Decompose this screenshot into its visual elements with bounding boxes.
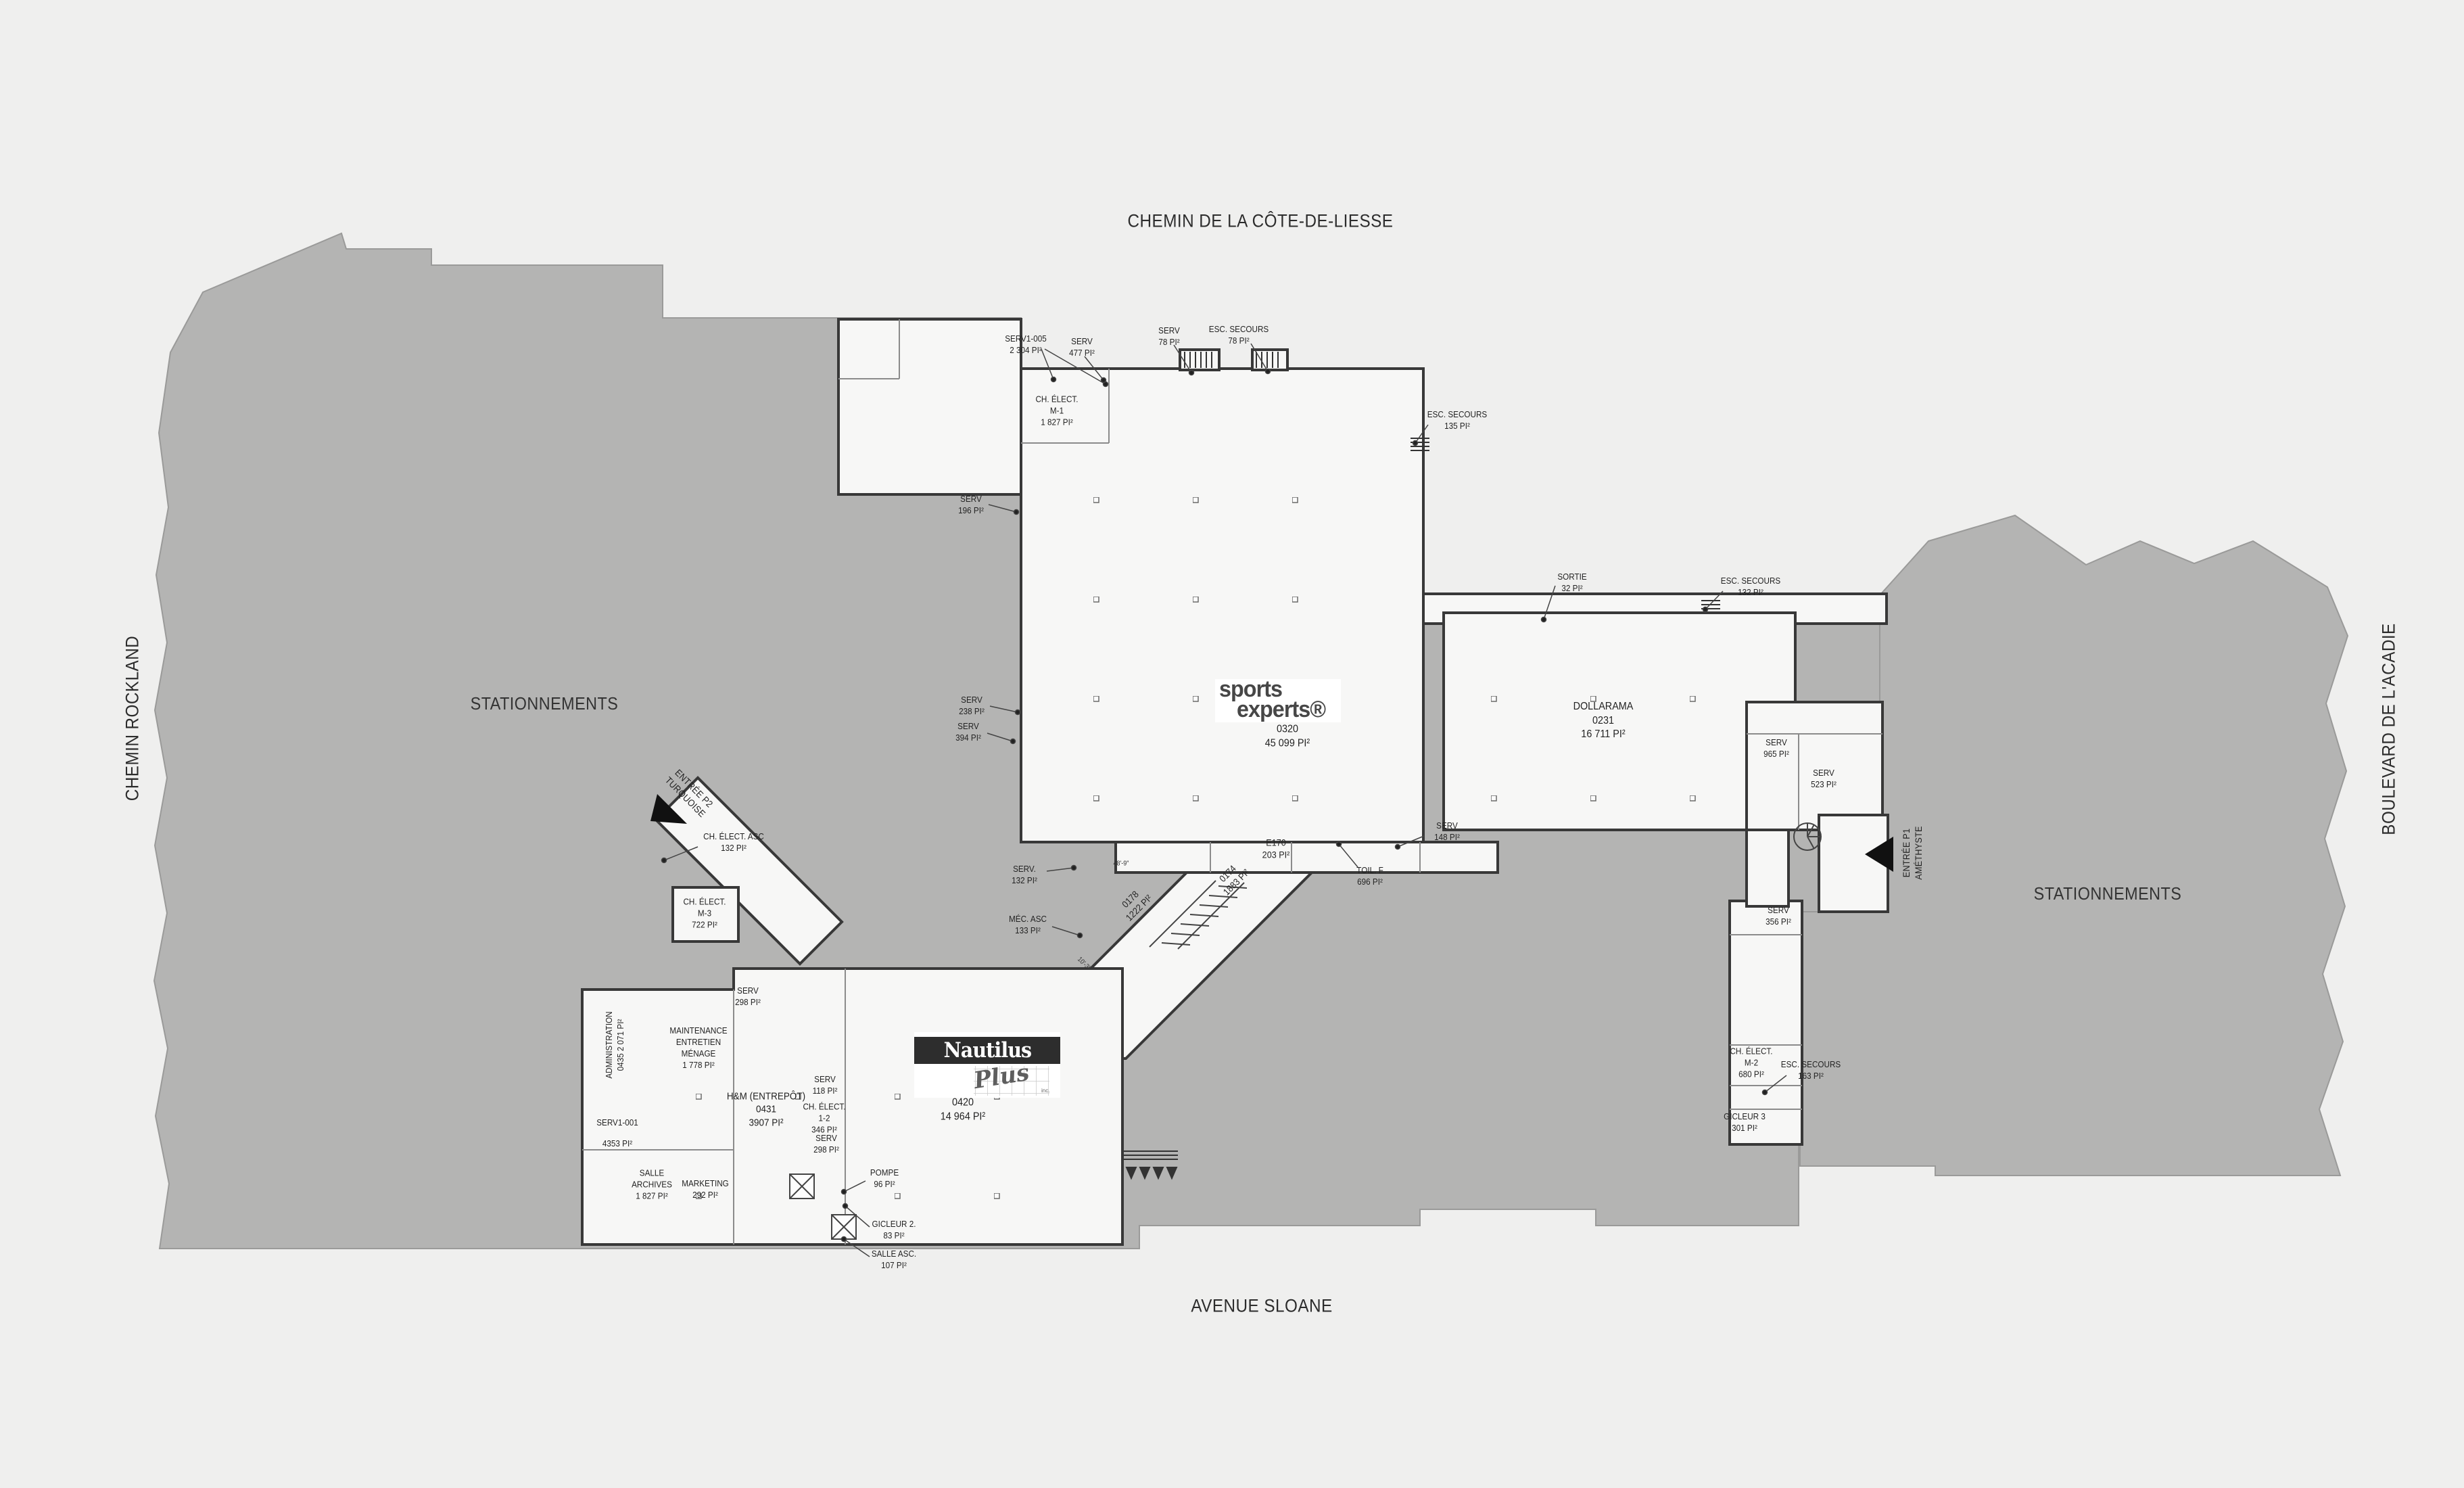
room-label-sortie-32: SORTIE32 PI² <box>1557 572 1586 595</box>
room-label-gicleur-3: GICLEUR 3301 PI² <box>1724 1111 1766 1134</box>
room-label-serv-394: SERV394 PI² <box>955 721 981 744</box>
room-label-esc-secours-78: ESC. SECOURS78 PI² <box>1209 324 1269 347</box>
room-label-serv-356: SERV356 PI² <box>1766 905 1791 928</box>
room-label-mec-asc: MÉC. ASC133 PI² <box>1009 914 1047 937</box>
hm-label: H&M (ENTREPÔT)04313907 PI² <box>727 1076 805 1142</box>
room-label-ch-elect-m1: CH. ÉLECT. M-11 827 PI² <box>1035 394 1078 429</box>
street-label-bottom: AVENUE SLOANE <box>1191 1294 1332 1318</box>
block-serv1-005 <box>838 319 1021 494</box>
room-label-serv-148: SERV148 PI² <box>1434 820 1460 843</box>
room-label-ch-elect-m3: CH. ÉLECT. M-3722 PI² <box>683 897 726 931</box>
nautilus-plus-logo: Nautilus Plus inc. <box>914 1032 1060 1098</box>
parking-label-right: STATIONNEMENTS <box>2034 883 2182 906</box>
room-label-serv1-005: SERV1-0052 304 PI² <box>1005 333 1047 356</box>
room-label-ch-elect-1-2: CH. ÉLECT. 1-2346 PI² <box>803 1102 845 1136</box>
room-label-esc-secours-132: ESC. SECOURS132 PI² <box>1721 576 1780 599</box>
room-label-gicleur-2: GICLEUR 2.83 PI² <box>872 1219 916 1242</box>
street-label-left: CHEMIN ROCKLAND <box>120 636 144 801</box>
floor-plan: CHEMIN DE LA CÔTE-DE-LIESSE CHEMIN ROCKL… <box>0 0 2464 1488</box>
room-label-salle-archives: SALLE ARCHIVES1 827 PI² <box>632 1168 672 1203</box>
service-column-east <box>1730 901 1802 1144</box>
entrance-lobby-p1 <box>1819 815 1888 912</box>
room-label-serv-132: SERV.132 PI² <box>1012 864 1037 887</box>
room-label-esc-secours-163: ESC. SECOURS163 PI² <box>1781 1059 1841 1082</box>
sports-experts-unit: 032045 099 PI² <box>1265 708 1310 764</box>
room-label-serv1-001: SERV1-0014353 PI² <box>596 1117 638 1150</box>
block-serv-east <box>1747 702 1882 830</box>
room-label-ch-elect-m2: CH. ÉLECT. M-2680 PI² <box>1730 1046 1772 1081</box>
room-label-administration: ADMINISTRATION0435 2 071 PI² <box>604 1011 627 1078</box>
room-label-pompe: POMPE96 PI² <box>870 1167 899 1190</box>
room-label-serv-523: SERV523 PI² <box>1811 768 1837 791</box>
room-label-serv-965: SERV965 PI² <box>1763 737 1789 760</box>
room-label-maintenance: MAINTENANCE ENTRETIEN MÉNAGE1 778 PI² <box>669 1025 727 1071</box>
room-label-toil-f: TOIL. F696 PI² <box>1356 865 1383 888</box>
room-label-esc-secours-135: ESC. SECOURS135 PI² <box>1427 409 1487 432</box>
nautilus-unit: 042014 964 PI² <box>941 1082 985 1138</box>
room-label-serv-118: SERV118 PI² <box>813 1074 838 1097</box>
room-label-salle-asc: SALLE ASC.107 PI² <box>872 1249 916 1272</box>
room-label-serv-238: SERV238 PI² <box>959 695 985 718</box>
room-label-serv-298-top: SERV298 PI² <box>735 985 761 1008</box>
room-label-serv-298-bottom: SERV298 PI² <box>813 1133 839 1156</box>
parking-label-left: STATIONNEMENTS <box>471 693 619 716</box>
room-label-serv-78: SERV78 PI² <box>1158 325 1180 348</box>
room-label-serv-196: SERV196 PI² <box>958 494 984 517</box>
stair-pod-top-1 <box>1180 350 1219 370</box>
dollarama-label: DOLLARAMA023116 711 PI² <box>1573 686 1634 756</box>
room-label-ch-elect-asc: CH. ÉLECT. ASC132 PI² <box>703 831 764 854</box>
room-label-marketing: MARKETING292 PI² <box>682 1178 729 1201</box>
stair-pod-top-2 <box>1252 350 1287 370</box>
street-label-top: CHEMIN DE LA CÔTE-DE-LIESSE <box>1128 209 1394 233</box>
corridor-e170 <box>1116 842 1498 873</box>
corridor-e170-label: E170203 PI² <box>1262 824 1290 874</box>
room-label-serv-477: SERV477 PI² <box>1069 336 1095 359</box>
entrance-p1-label: ENTRÉE P1 AMÉTHYSTE <box>1900 826 1924 879</box>
street-label-right: BOULEVARD DE L'ACADIE <box>2377 623 2400 835</box>
service-connector-east <box>1747 830 1788 906</box>
dimension-48-9: 48'-9" <box>1114 860 1129 868</box>
